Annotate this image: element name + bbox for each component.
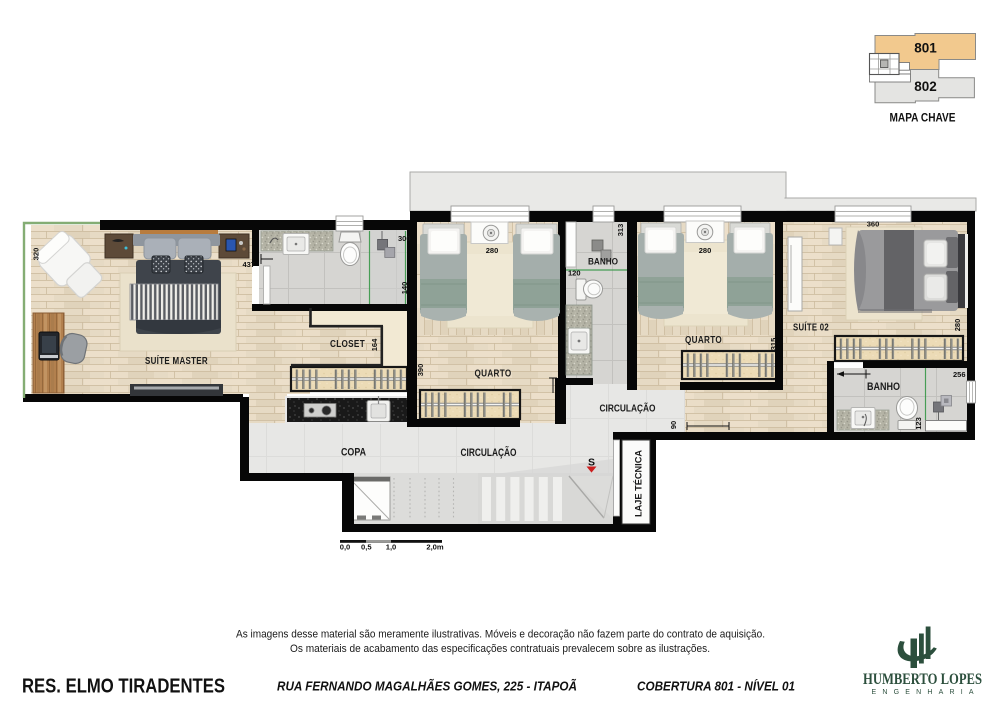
svg-text:300: 300 <box>398 234 411 243</box>
svg-text:COBERTURA 801 - NÍVEL 01: COBERTURA 801 - NÍVEL 01 <box>637 679 795 694</box>
svg-text:120: 120 <box>568 269 581 278</box>
svg-text:164: 164 <box>370 338 379 351</box>
svg-text:CIRCULAÇÃO: CIRCULAÇÃO <box>600 402 656 415</box>
svg-text:280: 280 <box>953 319 962 332</box>
svg-text:As imagens desse material são: As imagens desse material são meramente … <box>236 629 765 641</box>
svg-text:437: 437 <box>243 260 256 269</box>
svg-text:280: 280 <box>699 246 712 255</box>
svg-text:256: 256 <box>953 370 966 379</box>
svg-text:RUA FERNANDO MAGALHÃES GOMES,: RUA FERNANDO MAGALHÃES GOMES, 225 - ITAP… <box>277 679 577 694</box>
svg-text:140: 140 <box>400 282 409 295</box>
svg-text:320: 320 <box>32 248 41 261</box>
svg-text:CLOSET: CLOSET <box>330 338 365 350</box>
svg-text:COPA: COPA <box>341 447 366 459</box>
svg-text:123: 123 <box>914 417 923 430</box>
svg-text:2,0m: 2,0m <box>426 543 444 552</box>
svg-text:MAPA CHAVE: MAPA CHAVE <box>890 113 956 125</box>
svg-text:390: 390 <box>416 364 425 377</box>
svg-text:BANHO: BANHO <box>588 257 618 268</box>
svg-text:90: 90 <box>669 421 678 429</box>
svg-text:0,5: 0,5 <box>361 543 372 552</box>
svg-text:802: 802 <box>914 79 937 94</box>
svg-text:SUÍTE MASTER: SUÍTE MASTER <box>145 354 208 367</box>
svg-text:QUARTO: QUARTO <box>685 334 722 346</box>
svg-text:315: 315 <box>769 338 778 351</box>
svg-text:HUMBERTO LOPES: HUMBERTO LOPES <box>863 671 982 688</box>
svg-text:280: 280 <box>486 246 499 255</box>
svg-text:0,0: 0,0 <box>340 543 351 552</box>
svg-text:1,0: 1,0 <box>386 543 397 552</box>
svg-text:Os materiais de acabamento das: Os materiais de acabamento das especific… <box>290 643 710 655</box>
svg-text:SUÍTE 02: SUÍTE 02 <box>793 321 829 334</box>
svg-text:CIRCULAÇÃO: CIRCULAÇÃO <box>461 446 517 459</box>
svg-text:801: 801 <box>914 41 937 56</box>
svg-text:360: 360 <box>867 220 880 229</box>
svg-text:QUARTO: QUARTO <box>475 368 512 380</box>
svg-text:RES. ELMO TIRADENTES: RES. ELMO TIRADENTES <box>22 676 225 698</box>
svg-text:BANHO: BANHO <box>867 381 900 393</box>
svg-text:LAJE TÉCNICA: LAJE TÉCNICA <box>634 450 644 517</box>
svg-text:313: 313 <box>616 224 625 237</box>
